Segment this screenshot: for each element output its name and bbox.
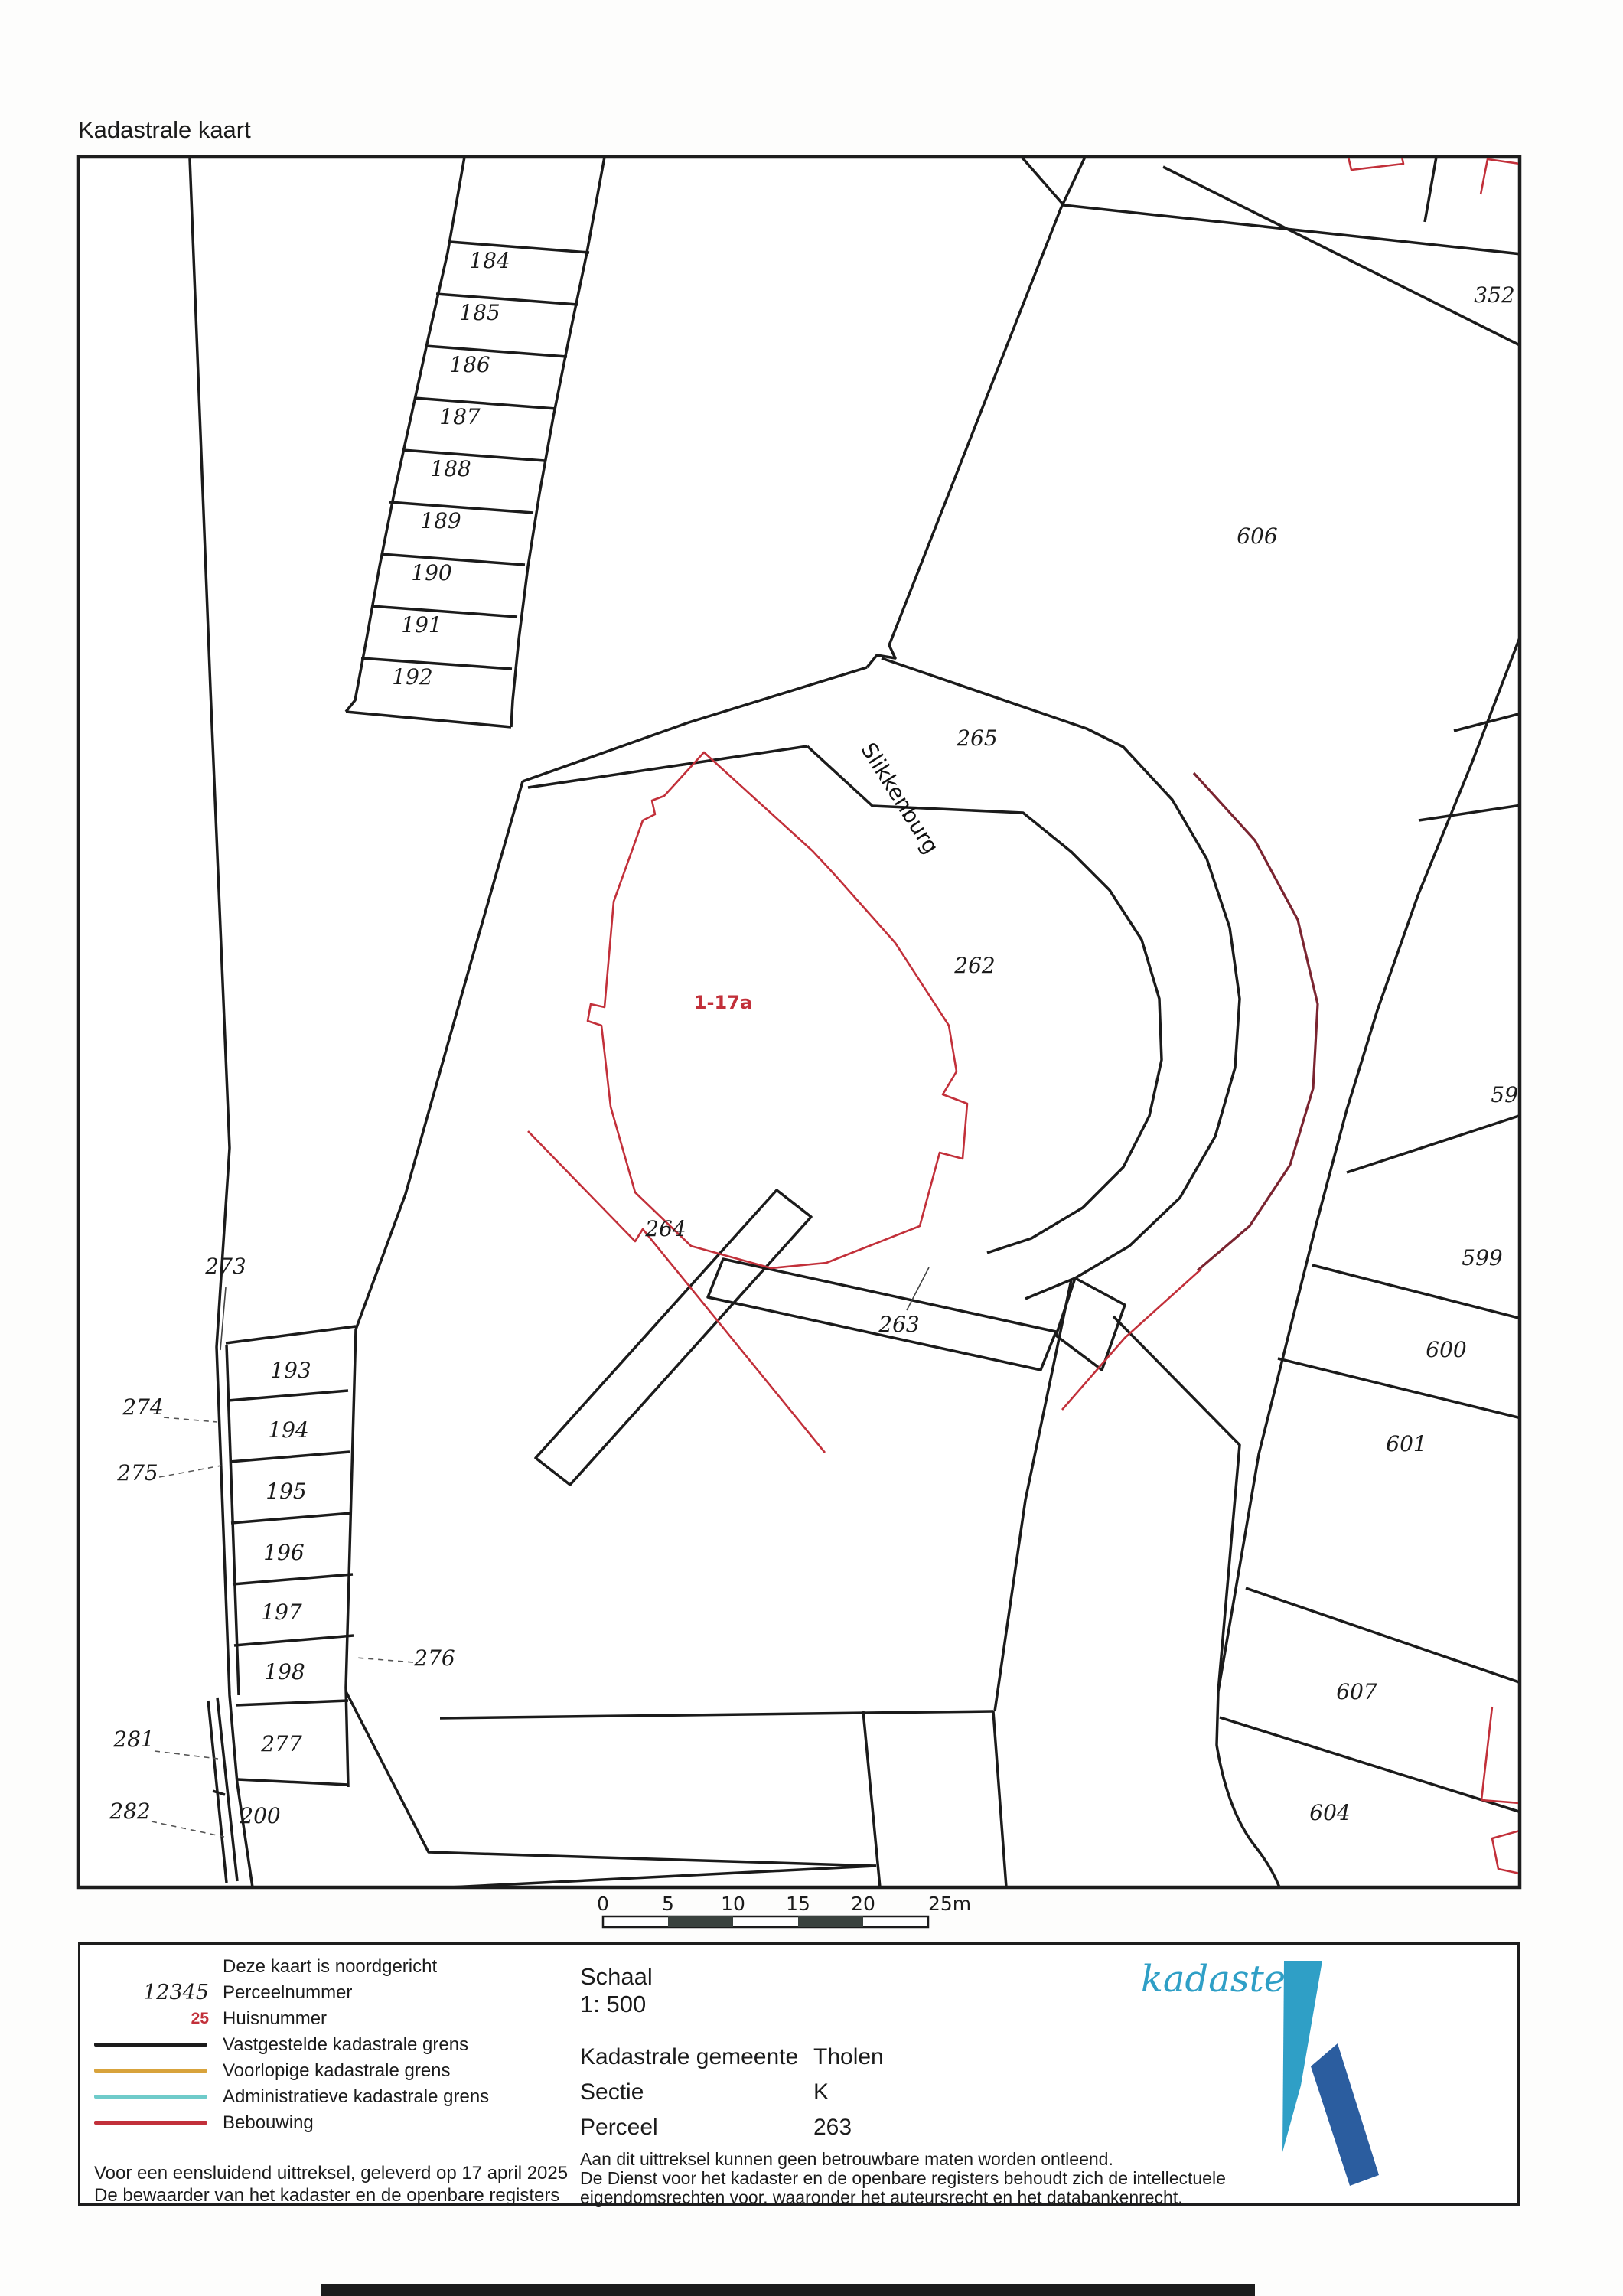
boundary-line xyxy=(882,658,1240,1299)
building-line xyxy=(528,1131,825,1453)
parcel-label: 188 xyxy=(430,456,471,481)
boundary-line xyxy=(425,346,567,357)
scalebar-dark-segment xyxy=(798,1916,863,1927)
parcel-label: 192 xyxy=(392,664,432,690)
scalebar-tick-label: 20 xyxy=(851,1893,875,1915)
parcel-label: 352 xyxy=(1474,282,1514,308)
field-value: K xyxy=(813,2079,829,2105)
boundary-line xyxy=(807,746,1162,1253)
boundary-line xyxy=(237,1779,348,1785)
boundary-line xyxy=(208,1701,227,1883)
leader-line xyxy=(907,1267,929,1310)
legend-item-label: Deze kaart is noordgericht xyxy=(223,1955,437,1978)
boundary-line xyxy=(536,1190,811,1485)
building-line xyxy=(1062,1269,1201,1410)
building-line xyxy=(588,752,967,1268)
legend-line-sample xyxy=(94,2043,207,2047)
field-value: 263 xyxy=(813,2115,852,2141)
boundary-line xyxy=(389,502,533,513)
parcel-label: 600 xyxy=(1426,1337,1466,1362)
scalebar-tick-label: 25m xyxy=(928,1893,971,1915)
parcel-label: 277 xyxy=(260,1731,302,1756)
parcel-label: 197 xyxy=(261,1600,302,1625)
boundary-line xyxy=(213,1791,225,1795)
boundary-line xyxy=(1425,157,1436,222)
label-leader-lines xyxy=(152,1267,929,1837)
scale-bar: 0510152025m xyxy=(597,1893,971,1927)
boundary-line xyxy=(450,242,589,253)
boundary-line xyxy=(1246,1588,1521,1683)
boundary-line xyxy=(372,606,517,617)
page-title: Kadastrale kaart xyxy=(78,116,251,144)
legend-item-label: Bebouwing xyxy=(223,2112,314,2135)
map-frame xyxy=(78,157,1520,1887)
boundary-line xyxy=(230,1452,350,1462)
field-label: Sectie xyxy=(580,2079,644,2105)
boundary-line xyxy=(381,554,525,565)
boundary-line xyxy=(346,1691,876,1866)
scan-edge-artifact xyxy=(321,2284,1255,2296)
leader-line-dashed xyxy=(164,1417,217,1422)
field-label: Perceel xyxy=(580,2115,658,2140)
boundary-line xyxy=(190,158,253,1887)
boundary-line xyxy=(511,157,605,727)
parcel-label: 262 xyxy=(953,953,995,978)
parcel-label: 198 xyxy=(264,1659,305,1684)
boundary-line xyxy=(450,1866,876,1887)
parcel-label: 195 xyxy=(266,1479,306,1504)
legend-item-label: Vastgestelde kadastrale grens xyxy=(223,2033,468,2056)
boundary-line xyxy=(995,1280,1071,1711)
boundary-line xyxy=(1278,1358,1521,1418)
parcel-label: 601 xyxy=(1386,1431,1426,1456)
building-line xyxy=(1481,159,1520,194)
parcel-label: 184 xyxy=(469,248,510,273)
legend-line-sample xyxy=(94,2069,207,2073)
maroon-arc-line xyxy=(1194,773,1318,1270)
boundary-line xyxy=(1022,157,1521,254)
boundary-line xyxy=(993,1711,1006,1887)
boundary-line xyxy=(226,1326,356,1343)
boundary-line xyxy=(236,1701,348,1705)
boundary-line xyxy=(1217,634,1521,1887)
cadastral-field-row: Kadastrale gemeenteTholen xyxy=(580,2044,798,2070)
parcel-label: 200 xyxy=(239,1803,280,1828)
scalebar-dark-segment xyxy=(668,1916,733,1927)
legend-parcelnumber-sample: 12345 xyxy=(94,1981,209,2004)
building-arc xyxy=(1194,773,1318,1270)
scalebar-tick-label: 15 xyxy=(786,1893,810,1915)
leader-line-dashed xyxy=(155,1751,218,1759)
legend-footer-left: Voor een eensluidend uittreksel, gelever… xyxy=(94,2162,568,2206)
legal-notes: Aan dit uittreksel kunnen geen betrouwba… xyxy=(580,2150,1226,2207)
scalebar-bar xyxy=(603,1916,928,1927)
parcel-number-labels: 1841851861871881891901911922652622642633… xyxy=(109,248,1531,1828)
parcel-label: 281 xyxy=(112,1727,154,1752)
leader-line-dashed xyxy=(356,1658,413,1662)
scalebar-tick-label: 0 xyxy=(597,1893,609,1915)
parcel-label: 194 xyxy=(268,1417,308,1443)
parcel-label: 187 xyxy=(439,404,481,429)
leader-line-dashed xyxy=(152,1821,224,1837)
boundary-line xyxy=(1163,167,1521,346)
boundary-line xyxy=(361,658,512,669)
boundary-line xyxy=(231,1513,351,1523)
boundary-line xyxy=(440,1711,993,1718)
legal-note-line: eigendomsrechten voor, waaronder het aut… xyxy=(580,2188,1226,2207)
boundary-line xyxy=(1347,1115,1521,1172)
boundary-line xyxy=(234,1636,354,1645)
leader-line xyxy=(220,1287,226,1350)
boundary-line xyxy=(1113,1316,1240,1691)
building-line xyxy=(1348,157,1403,170)
boundary-line xyxy=(1454,713,1521,731)
boundary-line xyxy=(346,1329,356,1787)
parcel-label: 186 xyxy=(449,352,490,377)
boundary-line xyxy=(867,157,1085,667)
legend-item-label: Administratieve kadastrale grens xyxy=(223,2086,489,2108)
boundary-line xyxy=(402,450,545,461)
parcel-label: 264 xyxy=(644,1216,686,1241)
legend-housenumber-sample: 25 xyxy=(94,2007,209,2030)
cadastral-field-row: SectieK xyxy=(580,2079,644,2105)
street-name-label: Slikkenburg xyxy=(856,739,944,859)
parcel-label: 599 xyxy=(1462,1245,1502,1270)
footer-line: Voor een eensluidend uittreksel, gelever… xyxy=(94,2162,568,2184)
field-value: Tholen xyxy=(813,2044,884,2070)
boundary-line xyxy=(228,1391,348,1401)
legend-line-sample xyxy=(94,2095,207,2099)
legend-line-sample xyxy=(94,2121,207,2125)
legend-box: Deze kaart is noordgericht12345Perceelnu… xyxy=(78,1942,1520,2206)
boundary-line xyxy=(414,398,556,409)
parcel-label: 598 xyxy=(1491,1082,1531,1107)
parcel-label: 276 xyxy=(413,1645,455,1671)
scanned-cadastral-extract: Kadastrale kaart Deze kaart is noordgeri… xyxy=(0,0,1623,2296)
boundary-line xyxy=(1220,1717,1521,1812)
boundary-line xyxy=(436,294,578,305)
legal-note-line: Aan dit uittreksel kunnen geen betrouwba… xyxy=(580,2150,1226,2169)
house-number-label: 1-17a xyxy=(694,992,752,1013)
boundary-line xyxy=(708,1259,1056,1370)
parcel-label: 607 xyxy=(1336,1679,1377,1704)
parcel-label: 189 xyxy=(420,508,461,533)
parcel-label: 265 xyxy=(956,726,997,751)
boundary-line xyxy=(233,1574,353,1584)
parcel-label: 196 xyxy=(263,1540,304,1565)
building-line xyxy=(1492,1831,1520,1874)
parcel-label: 274 xyxy=(122,1394,163,1420)
legend-item-label: Huisnummer xyxy=(223,2007,327,2030)
boundary-line xyxy=(1056,1278,1125,1370)
footer-line: De bewaarder van het kadaster en de open… xyxy=(94,2184,568,2206)
boundary-line xyxy=(356,781,523,1329)
scale-label: Schaal 1: 500 xyxy=(580,1963,653,2018)
boundary-line xyxy=(1419,805,1521,820)
boundary-line xyxy=(346,712,511,727)
scalebar-tick-label: 10 xyxy=(721,1893,745,1915)
parcel-label: 193 xyxy=(270,1358,311,1383)
parcel-label: 273 xyxy=(204,1254,246,1279)
building-outlines xyxy=(528,157,1520,1874)
parcel-label: 275 xyxy=(116,1460,158,1486)
legend-item-label: Perceelnummer xyxy=(223,1981,352,2004)
boundary-line xyxy=(863,1711,880,1887)
building-line xyxy=(1481,1707,1520,1803)
boundary-line xyxy=(1312,1265,1521,1319)
boundary-line xyxy=(227,1345,239,1695)
scalebar-tick-label: 5 xyxy=(662,1893,674,1915)
cadastral-field-row: Perceel263 xyxy=(580,2115,658,2141)
parcel-label: 190 xyxy=(411,560,451,585)
boundary-line xyxy=(217,1698,237,1881)
parcel-label: 282 xyxy=(109,1799,150,1824)
parcel-label: 606 xyxy=(1237,523,1277,549)
parcel-label: 185 xyxy=(459,300,500,325)
parcel-label: 604 xyxy=(1309,1800,1350,1825)
legend-item-label: Voorlopige kadastrale grens xyxy=(223,2060,451,2082)
cadastral-boundaries xyxy=(190,157,1521,1887)
leader-line-dashed xyxy=(159,1466,221,1477)
boundary-line xyxy=(528,746,807,788)
legal-note-line: De Dienst voor het kadaster en de openba… xyxy=(580,2169,1226,2188)
boundary-line xyxy=(346,157,464,712)
field-label: Kadastrale gemeente xyxy=(580,2044,798,2069)
parcel-label: 191 xyxy=(401,612,442,638)
parcel-label: 263 xyxy=(878,1312,919,1337)
boundary-line xyxy=(523,667,867,781)
